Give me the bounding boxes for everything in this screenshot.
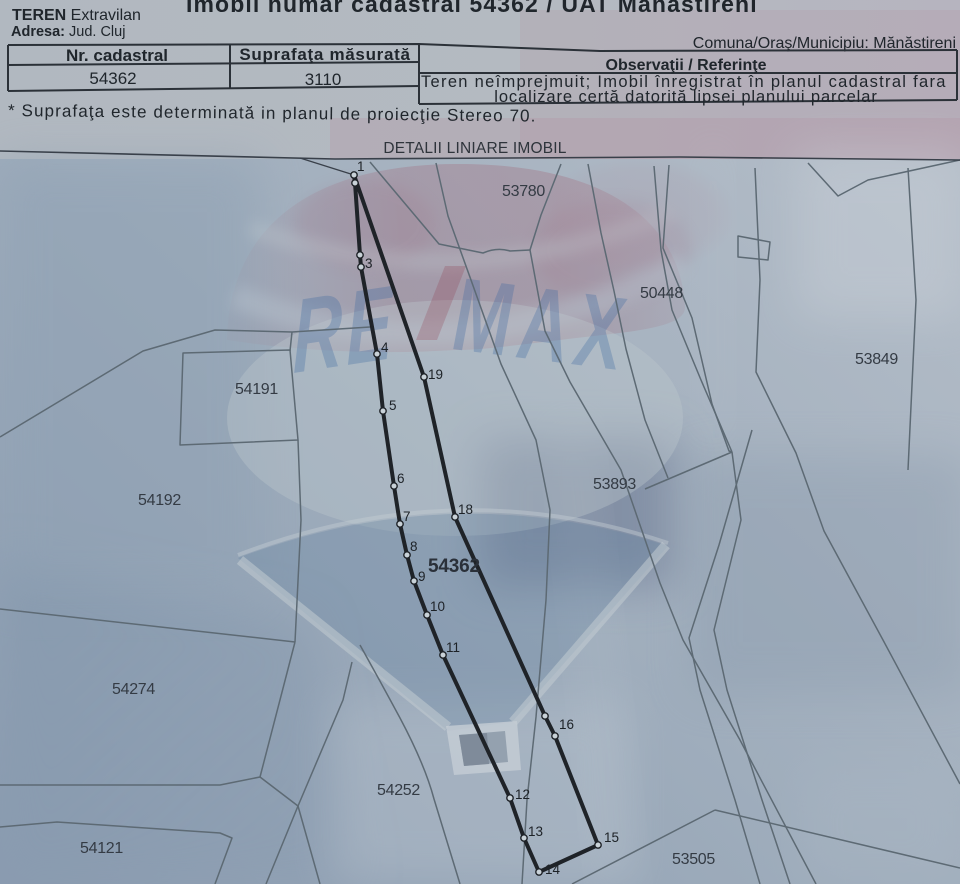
svg-text:54191: 54191 [235, 381, 278, 398]
svg-text:14: 14 [545, 862, 561, 877]
svg-text:54192: 54192 [138, 492, 181, 509]
svg-text:Suprafaţa măsurată: Suprafaţa măsurată [239, 45, 410, 64]
svg-text:11: 11 [446, 640, 460, 655]
svg-text:3110: 3110 [305, 70, 342, 89]
svg-text:localizare certă datorită lips: localizare certă datorită lipsei planulu… [494, 88, 877, 106]
svg-text:5: 5 [389, 398, 397, 413]
svg-text:53849: 53849 [855, 351, 898, 368]
svg-text:4: 4 [381, 340, 389, 355]
svg-text:18: 18 [458, 502, 473, 517]
svg-text:19: 19 [428, 367, 443, 382]
svg-text:15: 15 [604, 830, 619, 845]
svg-text:16: 16 [559, 717, 574, 732]
svg-text:12: 12 [515, 787, 530, 802]
svg-text:6: 6 [397, 471, 405, 486]
svg-text:54362: 54362 [89, 69, 136, 88]
svg-text:Nr. cadastral: Nr. cadastral [66, 46, 168, 65]
svg-text:8: 8 [410, 539, 418, 554]
svg-text:54252: 54252 [377, 782, 420, 799]
svg-text:9: 9 [418, 569, 426, 584]
svg-text:50448: 50448 [640, 285, 683, 302]
svg-text:Imobil număr cadastral 54362 /: Imobil număr cadastral 54362 / UAT Mănăs… [186, 0, 758, 17]
svg-text:7: 7 [403, 509, 411, 524]
svg-text:53893: 53893 [593, 476, 636, 493]
svg-text:54362: 54362 [428, 556, 480, 577]
svg-text:TEREN Extravilan: TEREN Extravilan [12, 7, 141, 24]
svg-text:10: 10 [430, 599, 445, 614]
svg-text:1: 1 [357, 159, 365, 174]
svg-text:13: 13 [528, 824, 543, 839]
svg-text:53780: 53780 [502, 183, 545, 200]
svg-text:Adresa: Jud. Cluj: Adresa: Jud. Cluj [11, 24, 125, 40]
svg-text:Observaţii / Referinţe: Observaţii / Referinţe [606, 57, 767, 74]
svg-text:54274: 54274 [112, 681, 155, 698]
svg-text:MAX: MAX [451, 255, 633, 393]
svg-text:3: 3 [365, 256, 373, 271]
svg-text:53505: 53505 [672, 851, 715, 868]
svg-text:54121: 54121 [80, 840, 123, 857]
svg-text:DETALII LINIARE IMOBIL: DETALII LINIARE IMOBIL [383, 140, 566, 157]
